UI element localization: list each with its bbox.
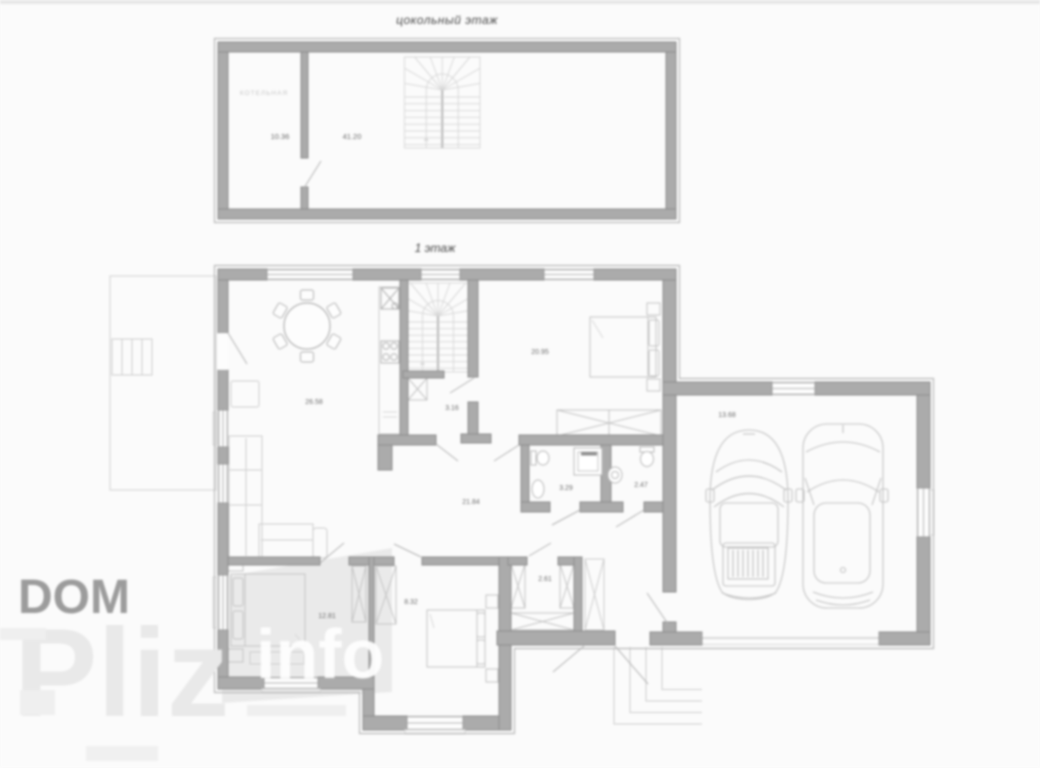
svg-text:21.84: 21.84 [462,499,480,506]
svg-text:8.32: 8.32 [404,599,418,606]
svg-text:3.16: 3.16 [445,405,459,412]
svg-text:Pliz: Pliz [14,604,229,743]
svg-text:20.95: 20.95 [531,349,549,356]
svg-text:1 этаж: 1 этаж [415,241,456,255]
svg-text:2.61: 2.61 [538,576,552,583]
svg-text:13.68: 13.68 [718,412,736,419]
svg-text:2.47: 2.47 [634,482,648,489]
svg-text:26.58: 26.58 [305,399,323,406]
svg-text:info: info [256,615,384,693]
svg-text:цокольный этаж: цокольный этаж [396,13,498,27]
svg-text:3.29: 3.29 [559,485,573,492]
svg-text:10.36: 10.36 [271,132,290,141]
svg-text:КОТЕЛЬНАЯ: КОТЕЛЬНАЯ [240,90,288,97]
svg-text:41.20: 41.20 [343,132,362,141]
